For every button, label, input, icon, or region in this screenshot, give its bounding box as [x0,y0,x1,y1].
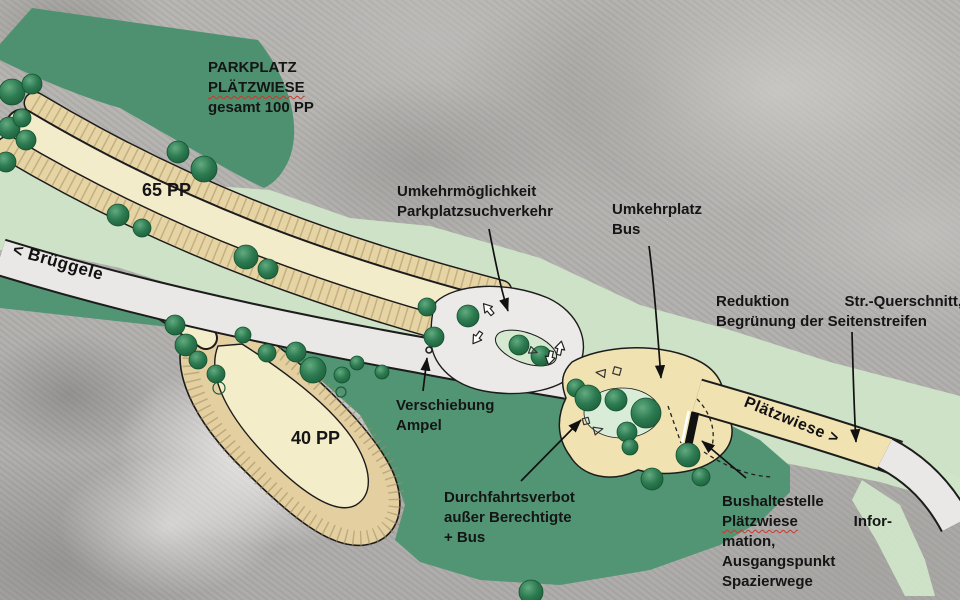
reduktion-word-2: Str.-Querschnitt, [844,292,960,312]
bushaltestelle-line-5: Spazierwege [722,572,892,592]
umkehrplatz-line-2: Bus [612,220,702,240]
title-line-1: PARKPLATZ [208,58,314,78]
annotation-umkehrmoeglichkeit: Umkehrmöglichkeit Parkplatzsuchverkehr [397,182,553,222]
verschiebung-line-1: Verschiebung [396,396,494,416]
durchfahrt-line-3: + Bus [444,528,575,548]
durchfahrt-line-2: außer Berechtigte [444,508,575,528]
title-line-3: gesamt 100 PP [208,98,314,118]
annotation-bushaltestelle: Bushaltestelle Plätzwiese Infor- mation,… [722,492,892,592]
bushaltestelle-line-3: mation, [722,532,892,552]
traffic-light-marker [426,347,432,353]
map-title: PARKPLATZ PLÄTZWIESE gesamt 100 PP [208,58,314,118]
label-40pp: 40 PP [291,428,340,448]
site-plan-map: PARKPLATZ PLÄTZWIESE gesamt 100 PP 65 PP… [0,0,960,600]
umkehrplatz-line-1: Umkehrplatz [612,200,702,220]
annotation-reduktion: Reduktion Str.-Querschnitt, Begrünung de… [716,292,960,332]
umkehr-line-1: Umkehrmöglichkeit [397,182,553,202]
annotation-verschiebung-ampel: Verschiebung Ampel [396,396,494,436]
reduktion-line-1: Reduktion Str.-Querschnitt, [716,292,960,312]
title-line-2: PLÄTZWIESE [208,78,314,98]
annotation-umkehrplatz-bus: Umkehrplatz Bus [612,200,702,240]
annotation-durchfahrtsverbot: Durchfahrtsverbot außer Berechtigte + Bu… [444,488,575,548]
bushaltestelle-word-information: Infor- [854,512,892,532]
umkehr-line-2: Parkplatzsuchverkehr [397,202,553,222]
label-65pp: 65 PP [142,180,191,200]
bushaltestelle-word-plaetzwiese: Plätzwiese [722,512,798,532]
reduktion-word-1: Reduktion [716,292,789,312]
verschiebung-line-2: Ampel [396,416,494,436]
durchfahrt-line-1: Durchfahrtsverbot [444,488,575,508]
reduktion-line-2: Begrünung der Seitenstreifen [716,312,960,332]
bushaltestelle-line-4: Ausgangspunkt [722,552,892,572]
bushaltestelle-line-2: Plätzwiese Infor- [722,512,892,532]
bushaltestelle-line-1: Bushaltestelle [722,492,892,512]
